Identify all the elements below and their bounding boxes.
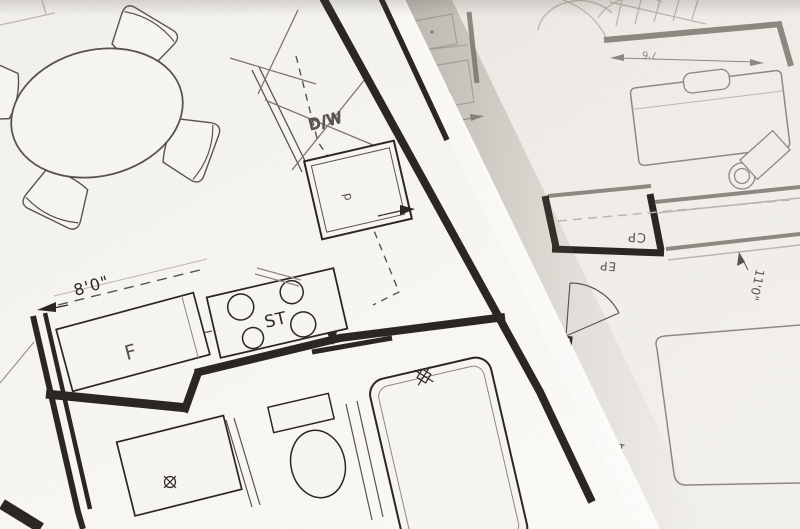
- floorplan-scene: 6'0 7'6: [0, 0, 800, 529]
- film-grain: [0, 0, 800, 529]
- blueprint-photo: 6'0 7'6: [0, 0, 800, 529]
